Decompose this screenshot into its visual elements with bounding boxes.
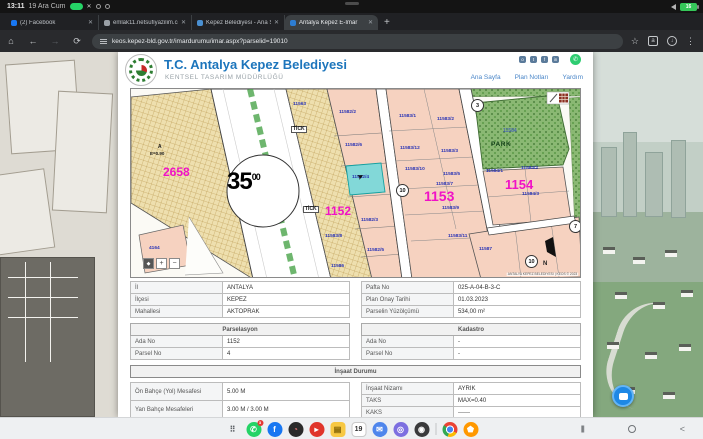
parcel-number-label: 11583/2 — [437, 118, 454, 123]
field-label: Parselin Yüzölçümü — [362, 306, 454, 318]
insaat-right-table: İnşaat NizamıAYRIKTAKSMAX=0.40KAKS------ — [361, 382, 581, 417]
table-row: TAKSMAX=0.40 — [362, 395, 581, 407]
table-row: Pafta No025-A-04-B-3-C — [362, 282, 581, 294]
parcel-number-label: 11582/2 — [339, 111, 356, 116]
field-value: 1152 — [222, 336, 349, 348]
block-number-label: 2658 — [163, 166, 190, 178]
field-label: Pafta No — [362, 282, 454, 294]
road-width-label: 3500 — [227, 168, 260, 196]
sound-icon — [671, 4, 676, 10]
field-value: ------ — [453, 407, 580, 418]
app-red-app-icon[interactable]: ▸ — [309, 422, 324, 437]
field-value: AKTOPRAK — [222, 306, 349, 318]
parcel-number-label: A — [158, 145, 162, 150]
insaat-left-table: Ön Bahçe (Yol) Mesafesi5.00 MYan Bahçe M… — [130, 382, 350, 417]
parcel-number-label: 11586 — [331, 265, 344, 270]
browser-tab[interactable]: Kepez Belediyesi - Ana Sa✕ — [192, 15, 285, 30]
parselasyon-title: Parselasyon — [131, 324, 350, 336]
clock: 13:11 — [7, 3, 25, 10]
nav-link-plan-notları[interactable]: Plan Notları — [515, 74, 549, 81]
map-locate-button[interactable]: ◆ — [143, 258, 154, 269]
browser-tab[interactable]: (2) Facebook✕ — [6, 15, 99, 30]
linkedin-icon[interactable]: in — [552, 56, 559, 63]
wallpaper-sketch — [0, 52, 118, 417]
field-value: 4 — [222, 348, 349, 360]
field-label: KAKS — [362, 407, 454, 418]
facebook-app-icon[interactable]: f — [267, 422, 282, 437]
tab-label: Antalya Kepez E-İmar — [299, 20, 365, 26]
map-zoom-in-button[interactable]: + — [156, 258, 167, 269]
field-label: Parsel No — [131, 348, 223, 360]
tab-label: (2) Facebook — [20, 20, 85, 26]
kepez-municipality-logo-icon — [125, 54, 157, 86]
facebook-favicon-icon — [11, 20, 17, 26]
download-icon[interactable]: ↓ — [667, 36, 677, 46]
field-label: Parsel No — [362, 348, 454, 360]
whatsapp-notification-icon — [70, 3, 83, 10]
parcel-number-label: N — [543, 261, 547, 267]
field-value: 534,00 m² — [453, 306, 580, 318]
notification-badge: 3 — [257, 420, 263, 426]
location-table: İlANTALYAİlçesiKEPEZMahallesiAKTOPRAK — [130, 281, 350, 318]
road-width-marker: 10 — [525, 255, 538, 268]
parcel-number-label: 11583/1 — [399, 115, 416, 120]
parcel-number-label: 11582/6 — [345, 144, 362, 149]
gallery-app-icon[interactable]: ⬟ — [463, 422, 478, 437]
parcel-number-label: 11583/10 — [405, 168, 425, 173]
back-button[interactable]: ← — [22, 36, 44, 46]
browser-menu-icon[interactable]: ⋮ — [686, 36, 695, 47]
tick-zone-label: TİCK — [303, 206, 319, 213]
insaat-durumu-header: İnşaat Durumu — [130, 365, 581, 378]
browser-tab[interactable]: emlak11.netsufiyazilim.co✕ — [99, 15, 192, 30]
field-value: 025-A-04-B-3-C — [453, 282, 580, 294]
site-settings-icon[interactable] — [100, 39, 107, 44]
imar-map[interactable]: 2658115211531154AE=0.90PARKNTİCKTİCK1158… — [130, 88, 581, 278]
field-label: Mahallesi — [131, 306, 223, 318]
plan-table: Pafta No025-A-04-B-3-CPlan Onay Tarihi01… — [361, 281, 581, 318]
field-value: - — [453, 336, 580, 348]
field-label: Ada No — [362, 336, 454, 348]
table-row: Parsel No4 — [131, 348, 350, 360]
table-row: Ada No1152 — [131, 336, 350, 348]
notification-icon — [105, 4, 110, 9]
field-label: TAKS — [362, 395, 454, 407]
tab-close-icon[interactable]: ✕ — [88, 19, 93, 26]
app-dark-app-icon[interactable]: ◔ — [288, 422, 303, 437]
table-row: Yan Bahçe Mesafeleri3.00 M / 3.00 M — [131, 401, 350, 418]
table-row: Ön Bahçe (Yol) Mesafesi5.00 M — [131, 383, 350, 401]
field-value: 3.00 M / 3.00 M — [222, 401, 349, 418]
parcel-number-label: 11584/1 — [486, 170, 503, 175]
parcel-number-label: 11583/5 — [443, 173, 460, 178]
table-row: İlANTALYA — [131, 282, 350, 294]
field-value: - — [453, 348, 580, 360]
home-nav-button[interactable] — [628, 425, 636, 433]
home-button[interactable]: ⌂ — [0, 36, 22, 46]
page-subtitle: KENTSEL TASARIM MÜDÜRLÜĞÜ — [165, 74, 284, 81]
tab-close-icon[interactable]: ✕ — [274, 19, 279, 26]
parcel-number-label: 11583/7 — [436, 183, 453, 188]
webpage: T.C. Antalya Kepez Belediyesi KENTSEL TA… — [118, 52, 593, 417]
field-label: Yan Bahçe Mesafeleri — [131, 401, 223, 418]
site-header: T.C. Antalya Kepez Belediyesi KENTSEL TA… — [118, 52, 593, 88]
translate-icon[interactable]: a — [648, 36, 658, 46]
samsung-internet-app-icon[interactable]: ◎ — [393, 422, 408, 437]
parcel-number-label: 11583/3 — [441, 150, 458, 155]
table-row: İlçesiKEPEZ — [131, 294, 350, 306]
tab-close-icon[interactable]: ✕ — [368, 19, 373, 26]
road-width-marker: 7 — [569, 220, 581, 233]
parcel-number-label: 11587 — [479, 248, 492, 253]
parcel-number-label: 11583/8 — [325, 235, 342, 240]
screen: 13:11 19 Ara Cum ✕ 16 (2) Facebook✕emlak… — [0, 0, 703, 439]
parcel-info-section: İlANTALYAİlçesiKEPEZMahallesiAKTOPRAK Pa… — [118, 278, 593, 417]
parcel-number-label: 11583/9 — [442, 207, 459, 212]
wallpaper-city-render — [593, 52, 703, 417]
road-width-marker: 3 — [471, 99, 484, 112]
parcel-number-label: 11582/5 — [367, 249, 384, 254]
facebook-icon[interactable]: f — [541, 56, 548, 63]
parcel-number-label: 11584/3 — [522, 193, 539, 198]
keos-favicon-icon — [290, 20, 296, 26]
field-label: Ön Bahçe (Yol) Mesafesi — [131, 383, 223, 401]
whatsapp-contact-icon[interactable]: ✆ — [570, 54, 581, 65]
table-row: Plan Onay Tarihi01.03.2023 — [362, 294, 581, 306]
browser-tab[interactable]: Antalya Kepez E-İmar✕ — [285, 15, 378, 30]
field-value: ANTALYA — [222, 282, 349, 294]
camera-notch — [345, 2, 359, 5]
map-attribution: ANTALYA KEPEZ BELEDİYESİ | KEOS © 2023 — [506, 273, 578, 276]
block-number-label: 1152 — [325, 205, 351, 217]
camera-app-icon[interactable]: ◉ — [414, 422, 429, 437]
field-value: 01.03.2023 — [453, 294, 580, 306]
block-number-label: 1154 — [505, 178, 533, 191]
field-label: Ada No — [131, 336, 223, 348]
recent-apps-button[interactable]: ||| — [581, 426, 584, 433]
tab-label: Kepez Belediyesi - Ana Sa — [206, 20, 271, 26]
parcel-number-label: 11584 — [503, 129, 517, 134]
address-bar: ⌂ ← → ⟳ keos.kepez-bld.gov.tr/imardurumu… — [0, 30, 703, 52]
floating-assistant-button[interactable] — [612, 385, 634, 407]
new-tab-button[interactable]: + — [384, 17, 390, 28]
app-drawer-app-icon[interactable]: ⠿ — [225, 422, 240, 437]
mute-icon: ✕ — [87, 3, 92, 10]
field-label: İlçesi — [131, 294, 223, 306]
field-value: AYRIK — [453, 383, 580, 395]
table-row: KAKS------ — [362, 407, 581, 418]
tab-close-icon[interactable]: ✕ — [181, 19, 186, 26]
road-width-marker: 10 — [396, 184, 409, 197]
tick-zone-label: TİCK — [291, 126, 307, 133]
globe-favicon-icon — [104, 20, 110, 26]
back-nav-button[interactable]: < — [680, 424, 685, 434]
messages-app-icon[interactable]: ✉ — [372, 422, 387, 437]
parselasyon-table: Parselasyon Ada No1152Parsel No4 — [130, 323, 350, 360]
table-row: MahallesiAKTOPRAK — [131, 306, 350, 318]
twitter-icon[interactable]: t — [530, 56, 537, 63]
table-row: Parsel No- — [362, 348, 581, 360]
parcel-number-label: E=0.90 — [150, 152, 164, 157]
parcel-number-label: 11583/12 — [400, 147, 420, 152]
parcel-number-label: 11584/2 — [521, 167, 538, 172]
status-bar: 13:11 19 Ara Cum ✕ 16 — [0, 0, 703, 13]
field-label: İnşaat Nizamı — [362, 383, 454, 395]
field-value: MAX=0.40 — [453, 395, 580, 407]
field-value: 5.00 M — [222, 383, 349, 401]
nav-link-yardım[interactable]: Yardım — [563, 74, 583, 81]
parcel-number-label: PARK — [491, 142, 511, 149]
battery-icon: 16 — [680, 3, 697, 11]
parcel-number-label: 4164 — [149, 247, 160, 252]
chrome-app-icon[interactable] — [442, 422, 457, 437]
field-label: İl — [131, 282, 223, 294]
taskbar-divider — [435, 423, 436, 435]
nav-link-ana-sayfa[interactable]: Ana Sayfa — [471, 74, 501, 81]
table-row: Ada No- — [362, 336, 581, 348]
instagram-icon[interactable]: o — [519, 56, 526, 63]
kadastro-table: Kadastro Ada No-Parsel No- — [361, 323, 581, 360]
bookmark-star-icon[interactable]: ☆ — [631, 36, 639, 47]
tab-strip: (2) Facebook✕emlak11.netsufiyazilim.co✕K… — [0, 13, 703, 30]
url-field[interactable]: keos.kepez-bld.gov.tr/imardurumu/imar.as… — [92, 34, 623, 49]
table-row: İnşaat NizamıAYRIK — [362, 383, 581, 395]
url-text: keos.kepez-bld.gov.tr/imardurumu/imar.as… — [112, 38, 288, 45]
map-zoom-out-button[interactable]: − — [169, 258, 180, 269]
parcel-number-label: 11582/3 — [361, 219, 378, 224]
tab-label: emlak11.netsufiyazilim.co — [113, 20, 178, 26]
kepez-favicon-icon — [197, 20, 203, 26]
block-number-label: 1153 — [424, 189, 454, 203]
kadastro-title: Kadastro — [362, 324, 581, 336]
notification-icon — [96, 4, 101, 9]
parcel-number-label: 11583/11 — [448, 235, 467, 240]
forward-button[interactable]: → — [44, 36, 66, 46]
reload-button[interactable]: ⟳ — [66, 36, 88, 47]
page-title: T.C. Antalya Kepez Belediyesi — [164, 57, 347, 72]
taskbar: ⠿✆3f◔▸▤19✉◎◉⬟ ||| < — [0, 417, 703, 439]
whatsapp-app-icon[interactable]: ✆3 — [246, 422, 261, 437]
parcel-number-label: 11563 — [293, 103, 306, 108]
desktop-background: T.C. Antalya Kepez Belediyesi KENTSEL TA… — [0, 52, 703, 417]
notes-yellow-app-icon[interactable]: ▤ — [330, 422, 345, 437]
field-value: KEPEZ — [222, 294, 349, 306]
table-row: Parselin Yüzölçümü534,00 m² — [362, 306, 581, 318]
field-label: Plan Onay Tarihi — [362, 294, 454, 306]
calendar-app-icon[interactable]: 19 — [351, 422, 366, 437]
date: 19 Ara Cum — [29, 3, 66, 10]
